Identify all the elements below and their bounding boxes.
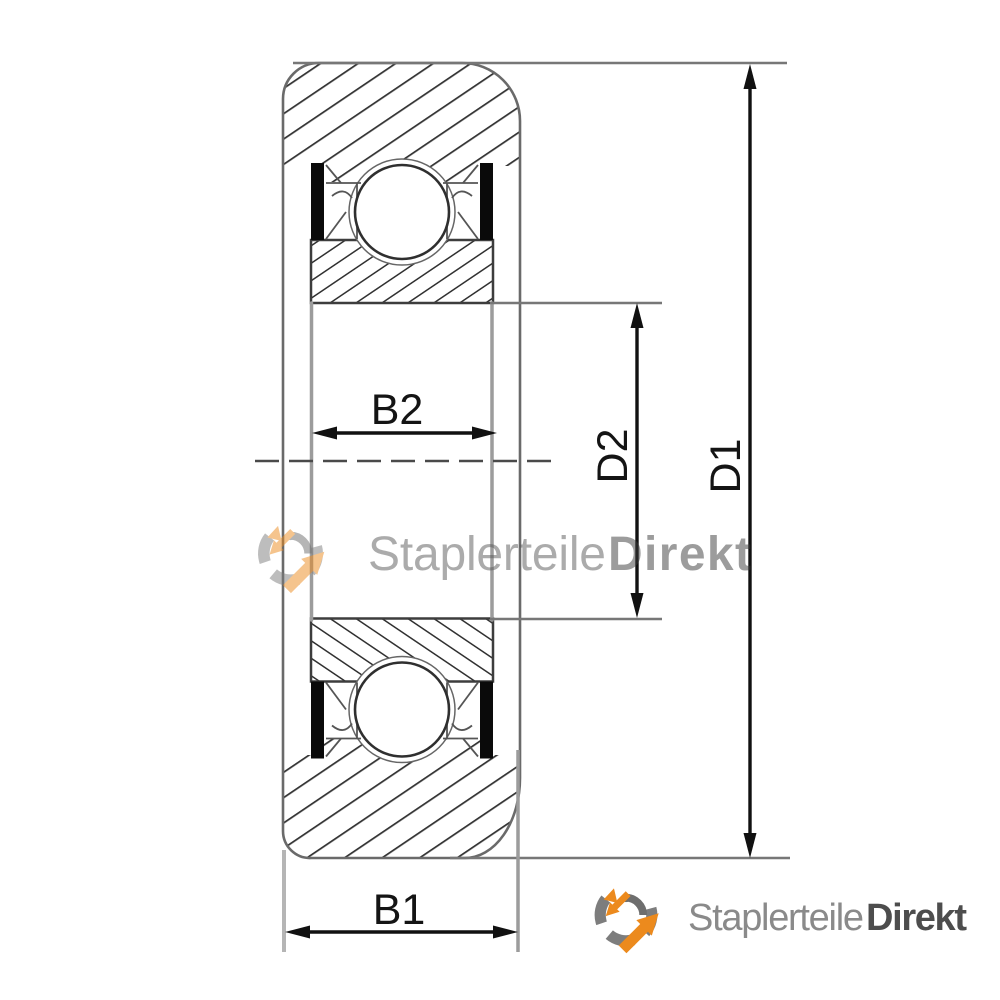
bearing-bottom <box>311 619 493 763</box>
bearing-drawing-page: D1 D2 B2 B1 Staplerteile Direkt Staplert… <box>0 0 1000 1000</box>
dimension-b1: B1 <box>285 886 518 939</box>
footer-brand-bold: Direkt <box>866 897 967 939</box>
footer-brand-regular: Staplerteile <box>688 897 864 939</box>
dim-label-b2: B2 <box>371 386 424 434</box>
dim-label-d2: D2 <box>589 429 637 484</box>
gear-arrows-icon <box>258 521 325 593</box>
dimension-d1: D1 <box>702 64 757 858</box>
dim-label-d1: D1 <box>702 439 750 494</box>
dimension-b2: B2 <box>312 386 497 440</box>
footer-logo: Staplerteile Direkt <box>594 883 967 953</box>
watermark-logo: Staplerteile Direkt <box>258 521 751 593</box>
watermark-brand-regular: Staplerteile <box>368 528 606 581</box>
gear-arrows-icon <box>594 883 658 953</box>
bearing-top <box>311 159 493 303</box>
watermark-brand-bold: Direkt <box>608 528 751 581</box>
bearing-technical-drawing: D1 D2 B2 B1 Staplerteile Direkt Staplert… <box>0 0 1000 1000</box>
dim-label-b1: B1 <box>373 886 426 934</box>
